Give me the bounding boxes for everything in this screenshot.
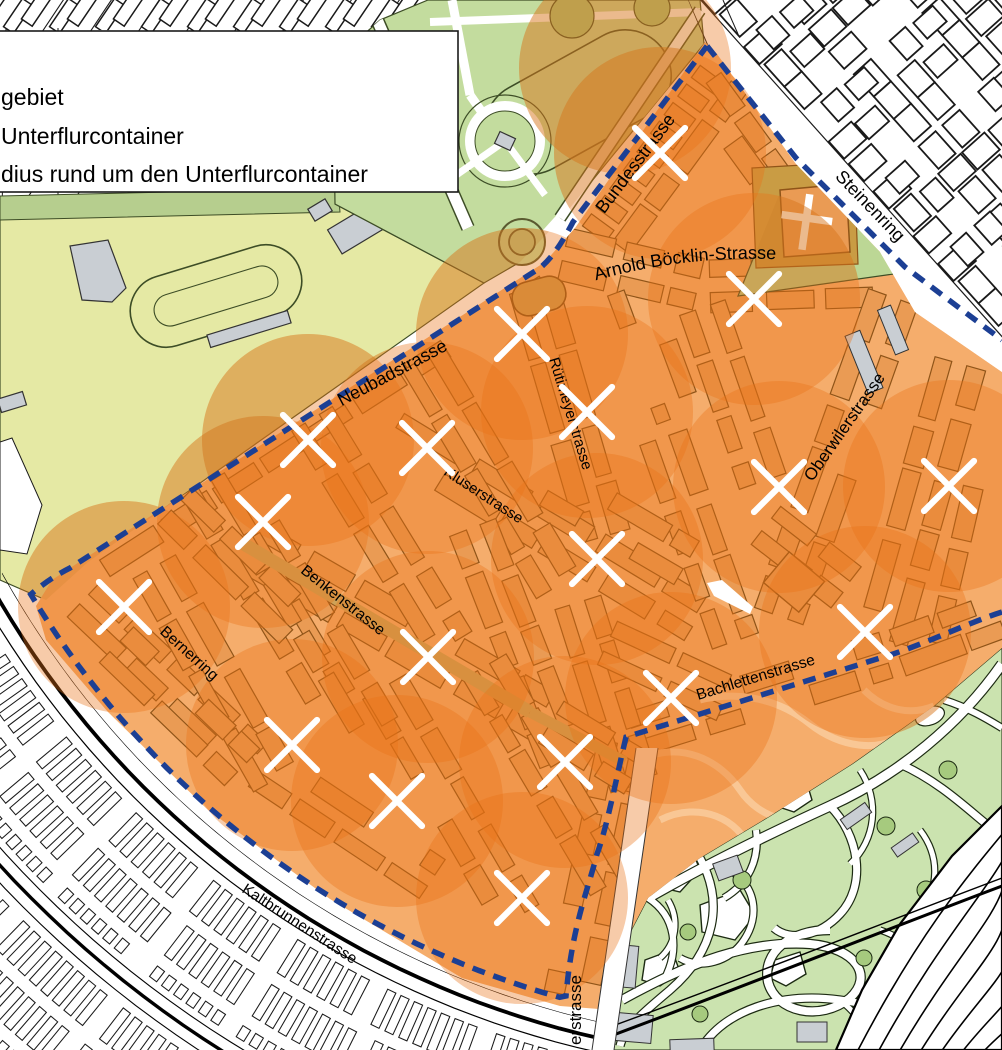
svg-text:erstrasse: erstrasse xyxy=(566,975,585,1045)
svg-text:Unterflurcontainer: Unterflurcontainer xyxy=(1,123,184,149)
svg-text:gebiet: gebiet xyxy=(1,84,64,110)
svg-text:dius rund um den Unterflurcont: dius rund um den Unterflurcontainer xyxy=(1,161,368,187)
